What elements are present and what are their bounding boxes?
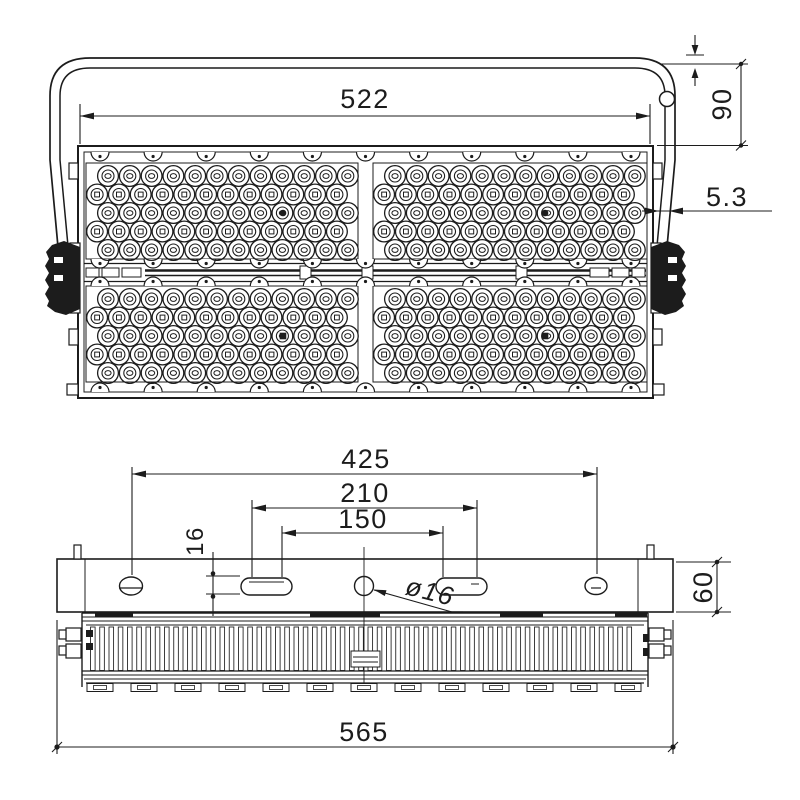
- left-pivot-knob: [45, 241, 80, 315]
- dim-label-90: 90: [707, 87, 737, 120]
- dim-plate-depth: 60: [676, 557, 731, 617]
- heatsink: [82, 612, 649, 692]
- bracket-hang-hole: [660, 92, 675, 107]
- mounting-plate: [57, 545, 673, 612]
- right-cable-glands: [649, 628, 671, 658]
- heatsink-feet: [87, 684, 641, 692]
- strap-thickness-arrows: [686, 35, 704, 86]
- dim-label-5.3: 5.3: [706, 182, 748, 212]
- technical-drawing-page: 522 90 5.3: [0, 0, 800, 800]
- right-pivot-knob: [651, 241, 686, 315]
- dim-label-150: 150: [338, 504, 388, 534]
- top-view: 425 210 150 16: [52, 444, 731, 754]
- dim-label-522: 522: [340, 84, 390, 114]
- dim-label-425: 425: [341, 444, 391, 474]
- dim-body-width: 522: [80, 84, 650, 144]
- dim-label-60: 60: [688, 570, 718, 603]
- left-cable-glands: [59, 628, 81, 658]
- front-view: 522 90 5.3: [45, 35, 772, 398]
- dim-label-16: 16: [182, 526, 209, 556]
- drawing-canvas: 522 90 5.3: [0, 0, 800, 800]
- dim-label-565: 565: [339, 717, 389, 747]
